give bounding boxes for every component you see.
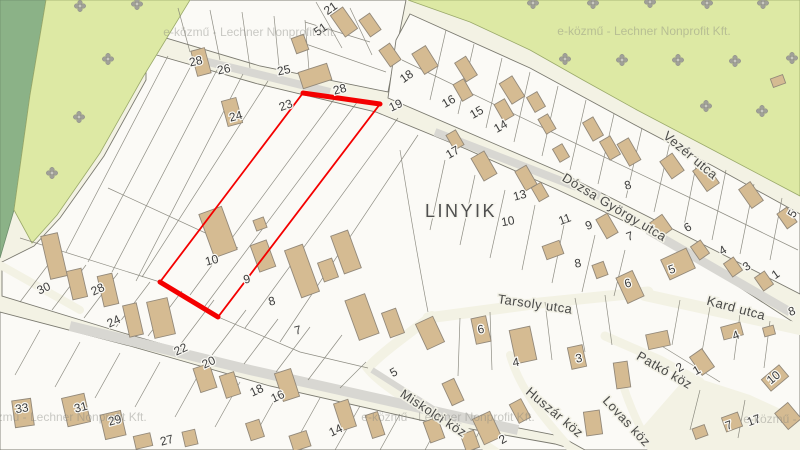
attribution-watermark: e-közmű - Lechner Nonprofit Kft. xyxy=(557,24,730,38)
parcel-number-label: 10 xyxy=(500,213,516,229)
attribution-watermark: e-közmű - Lechner Nonprofit Kft. xyxy=(743,412,800,426)
locality-label: LINYIK xyxy=(425,201,497,221)
attribution-watermark: e-közmű - Lechner Nonprofit Kft. xyxy=(0,410,147,424)
attribution-watermark: e-közmű - Lechner Nonprofit Kft. xyxy=(163,25,336,39)
map-viewport[interactable]: Dózsa György utcaVezér utcaTarsoly utcaK… xyxy=(0,0,800,450)
map-canvas[interactable]: Dózsa György utcaVezér utcaTarsoly utcaK… xyxy=(0,0,800,450)
parcel-number-label: 8 xyxy=(786,303,797,319)
attribution-watermark: e-közmű - Lechner Nonprofit Kft. xyxy=(361,410,534,424)
